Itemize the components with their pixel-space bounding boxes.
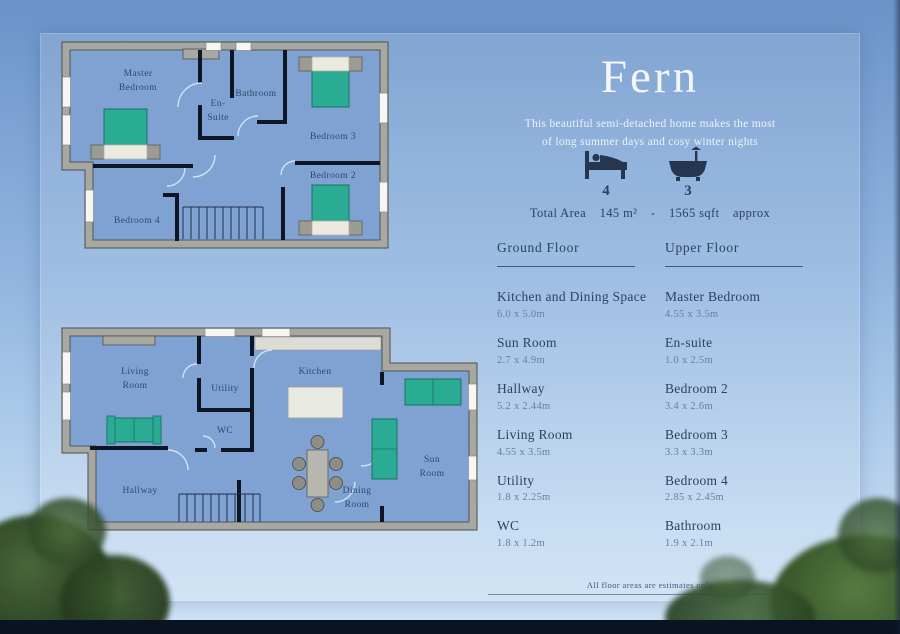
brochure-page: Master Bedroom En-Suite Bathroom Bedroom… xyxy=(0,0,900,634)
chimney-breast xyxy=(103,336,155,345)
room-label-bedroom-2: Bedroom 2 xyxy=(297,170,369,184)
tree-right-sparse xyxy=(700,556,755,601)
bathroom-count: 3 xyxy=(668,183,708,200)
room-label-bathroom: Bathroom xyxy=(220,88,292,102)
tagline-line-1: This beautiful semi-detached home makes … xyxy=(468,115,832,133)
list-item: En-suite 1.0 x 2.5m xyxy=(665,335,815,366)
total-area-suffix: approx xyxy=(733,206,770,220)
upper-floor-list: Upper Floor Master Bedroom 4.55 x 3.5m E… xyxy=(665,240,810,564)
kitchen-counter xyxy=(255,337,381,350)
room-label-living-room: Living Room xyxy=(109,366,161,394)
ground-floor-heading: Ground Floor xyxy=(497,240,635,267)
ground-floor-list: Ground Floor Kitchen and Dining Space 6.… xyxy=(497,240,655,564)
list-item: Hallway 5.2 x 2.44m xyxy=(497,381,647,412)
room-label-utility: Utility xyxy=(200,383,250,397)
room-label-bedroom-3: Bedroom 3 xyxy=(297,131,369,145)
list-item: Bedroom 2 3.4 x 2.6m xyxy=(665,381,815,412)
room-label-hallway: Hallway xyxy=(110,485,170,499)
bedroom-count: 4 xyxy=(586,183,626,200)
ground-strip xyxy=(0,620,900,634)
room-label-en-suite: En-Suite xyxy=(201,98,235,126)
tree-left-top xyxy=(28,498,106,564)
list-item: Sun Room 2.7 x 4.9m xyxy=(497,335,647,366)
room-label-sun-room: Sun Room xyxy=(412,454,452,482)
total-area-line: Total Area 145 m² - 1565 sqft approx xyxy=(480,206,820,221)
page-edge-shadow xyxy=(893,0,900,634)
total-area-metric: 145 m² xyxy=(600,206,638,220)
room-label-dining-room: Dining Room xyxy=(334,485,380,513)
tagline: This beautiful semi-detached home makes … xyxy=(468,115,832,152)
ground-floor-plan: Living Room Utility WC Kitchen Sun Room … xyxy=(55,322,485,537)
list-item: Bathroom 1.9 x 2.1m xyxy=(665,518,815,549)
list-item: Master Bedroom 4.55 x 3.5m xyxy=(665,289,815,320)
kitchen-island xyxy=(288,387,343,418)
total-area-imperial: 1565 sqft xyxy=(669,206,719,220)
room-label-kitchen: Kitchen xyxy=(285,366,345,380)
upper-floor-heading: Upper Floor xyxy=(665,240,803,267)
list-item: Utility 1.8 x 2.25m xyxy=(497,473,647,504)
bath-icon xyxy=(666,145,710,188)
list-item: Bedroom 3 3.3 x 3.3m xyxy=(665,427,815,458)
bed-icon xyxy=(582,147,630,188)
room-label-master-bedroom: Master Bedroom xyxy=(108,68,168,96)
list-item: Bedroom 4 2.85 x 2.45m xyxy=(665,473,815,504)
list-item: Living Room 4.55 x 3.5m xyxy=(497,427,647,458)
tagline-line-2: of long summer days and cosy winter nigh… xyxy=(468,133,832,151)
living-room-sofa xyxy=(107,416,161,444)
total-area-separator: - xyxy=(651,206,656,220)
room-label-wc: WC xyxy=(205,425,245,439)
ground-floor-plan-drawing xyxy=(55,322,485,537)
upper-floor-plan: Master Bedroom En-Suite Bathroom Bedroom… xyxy=(55,35,395,260)
list-item: Kitchen and Dining Space 6.0 x 5.0m xyxy=(497,289,647,320)
room-label-bedroom-4: Bedroom 4 xyxy=(101,215,173,229)
list-item: WC 1.8 x 1.2m xyxy=(497,518,647,549)
page-title: Fern xyxy=(480,50,820,104)
total-area-label: Total Area xyxy=(530,206,586,220)
